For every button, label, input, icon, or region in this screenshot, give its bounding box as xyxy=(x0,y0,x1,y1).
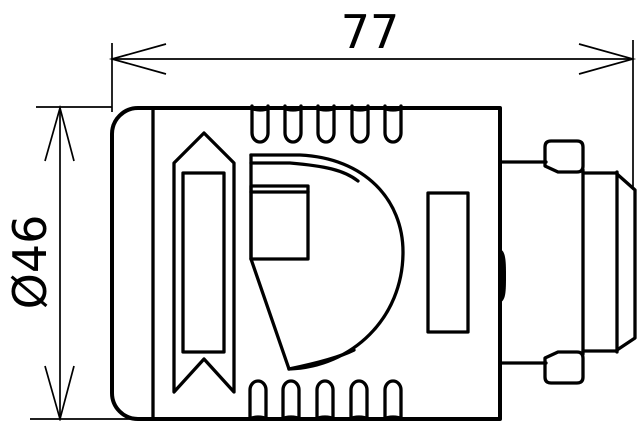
grip-ribs-bottom xyxy=(247,381,404,421)
grip-slot xyxy=(283,381,299,421)
width-dimension-label: 77 xyxy=(341,5,400,59)
rear-spigot xyxy=(500,141,635,383)
cam-disc xyxy=(251,155,403,369)
latch-bump xyxy=(500,249,506,303)
square-socket-outline xyxy=(251,186,308,259)
dimension-diameter: Ø46 xyxy=(3,107,141,419)
grip-slot xyxy=(385,381,401,421)
connector-technical-drawing: 77 Ø46 xyxy=(0,0,640,421)
label-window xyxy=(428,193,468,332)
cam-disc-chord-line xyxy=(251,259,289,369)
spigot-bottom-tab xyxy=(545,352,583,383)
cam-disc-bottom-inner-line xyxy=(289,350,354,369)
dimension-width: 77 xyxy=(112,5,633,187)
cam-disc-top-inner-line xyxy=(251,163,358,181)
spigot-ferrule-chamfered-end xyxy=(617,174,635,350)
spigot-top-tab xyxy=(545,141,583,172)
arrow-marking xyxy=(174,133,234,392)
grip-ribs-top xyxy=(249,106,404,142)
arrow-banner-inner-rect xyxy=(183,173,224,352)
grip-slot xyxy=(250,381,266,421)
grip-slot xyxy=(317,381,333,421)
square-socket xyxy=(251,186,308,259)
grip-slot xyxy=(351,381,367,421)
technical-drawing-canvas: 77 Ø46 xyxy=(0,0,640,421)
diameter-dimension-label: Ø46 xyxy=(3,215,57,310)
